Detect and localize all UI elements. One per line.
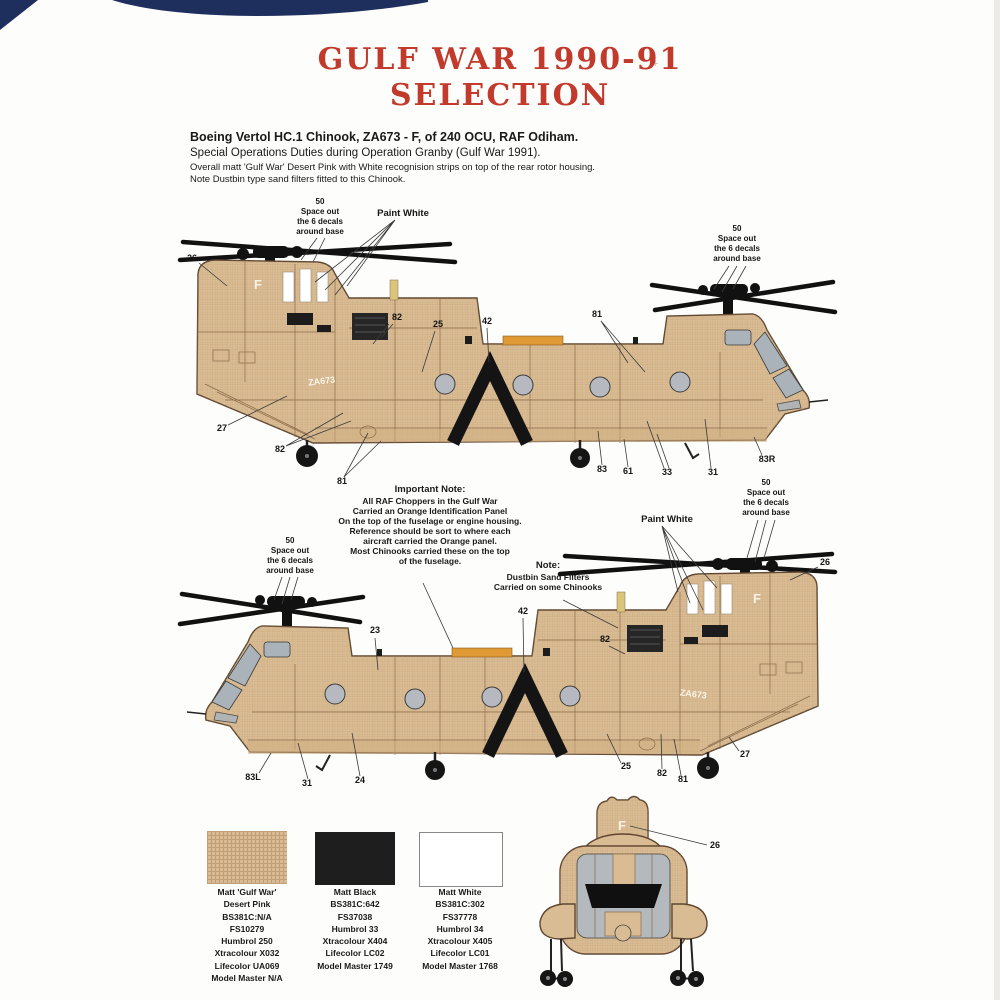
callout-26: 26: [187, 253, 197, 263]
decal-spacing-note: 50: [733, 224, 742, 233]
callout-31: 31: [302, 778, 312, 788]
callout-24: 24: [355, 775, 365, 785]
callout-81: 81: [592, 309, 602, 319]
callout-27: 27: [740, 749, 750, 759]
callout-26: 26: [820, 557, 830, 567]
right-sponson: [672, 904, 707, 939]
callout-83R: 83R: [759, 454, 776, 464]
scan-edge: [994, 0, 1000, 1000]
corner-triangle: [0, 0, 38, 30]
svg-text:the 6 decals: the 6 decals: [267, 556, 313, 565]
paint-white-label: Paint White: [377, 208, 429, 219]
svg-text:the 6 decals: the 6 decals: [714, 244, 760, 253]
svg-text:the 6 decals: the 6 decals: [743, 498, 789, 507]
svg-text:Space out: Space out: [718, 234, 757, 243]
callout-83L: 83L: [245, 772, 261, 782]
decal-spacing-note: 50: [286, 536, 295, 545]
paint-white-label: Paint White: [641, 514, 693, 525]
banner-swoosh: [112, 0, 428, 16]
callout-82: 82: [275, 444, 285, 454]
callout-42: 42: [518, 606, 528, 616]
paint-column-desert-pink: Matt 'Gulf War'Desert Pink BS381C:N/AFS1…: [185, 886, 309, 984]
callout-26: 26: [710, 840, 720, 850]
callout-81: 81: [678, 774, 688, 784]
code-letter-marking: F: [753, 591, 761, 606]
callout-82: 82: [392, 312, 402, 322]
callout-25: 25: [621, 761, 631, 771]
callout-82: 82: [657, 768, 667, 778]
top-banner-decoration: [0, 0, 440, 30]
callout-27: 27: [217, 423, 227, 433]
chinook-rear-view: F 26: [535, 788, 805, 1000]
decal-spacing-note: 50: [762, 478, 771, 487]
page-title-line1: GULF WAR 1990-91: [0, 42, 1000, 77]
chinook-profile-top: F ZA673 50 Space out the 6 decals: [165, 190, 845, 490]
svg-text:around base: around base: [713, 254, 761, 263]
subject-description: Boeing Vertol HC.1 Chinook, ZA673 - F, o…: [190, 130, 810, 186]
decal-spacing-note: 50: [316, 197, 325, 206]
svg-text:around base: around base: [266, 566, 314, 575]
svg-text:around base: around base: [296, 227, 344, 236]
aircraft-heading: Boeing Vertol HC.1 Chinook, ZA673 - F, o…: [190, 130, 810, 144]
paint-column-matt-white: Matt WhiteBS381C:302 FS37778Humbrol 34 X…: [398, 886, 522, 972]
rear-ramp-opening: [585, 884, 662, 908]
svg-text:Space out: Space out: [747, 488, 786, 497]
left-sponson: [540, 904, 575, 939]
chinook-profile-bottom: F ZA673 Paint White 50 Space out the 6 d…: [170, 470, 850, 800]
decal-instruction-sheet: + GULF WAR 1990-91 SELECTION Boeing Vert…: [0, 0, 1000, 1000]
svg-text:Space out: Space out: [301, 207, 340, 216]
swatch-matt-white: [419, 832, 503, 887]
code-letter-marking: F: [618, 818, 626, 833]
svg-text:the 6 decals: the 6 decals: [297, 217, 343, 226]
operation-line: Special Operations Duties during Operati…: [190, 147, 810, 159]
callout-82: 82: [600, 634, 610, 644]
scheme-line: Overall matt 'Gulf War' Desert Pink with…: [190, 162, 810, 173]
callout-23: 23: [370, 625, 380, 635]
svg-text:Space out: Space out: [271, 546, 310, 555]
swatch-matt-black: [315, 832, 395, 885]
page-title-line2: SELECTION: [0, 78, 1000, 113]
rear-view-airframe: F: [540, 797, 707, 988]
code-letter-marking: F: [254, 277, 262, 292]
callout-25: 25: [433, 319, 443, 329]
svg-text:around base: around base: [742, 508, 790, 517]
filter-line: Note Dustbin type sand filters fitted to…: [190, 174, 810, 185]
swatch-desert-pink: [207, 831, 287, 884]
callout-42: 42: [482, 316, 492, 326]
